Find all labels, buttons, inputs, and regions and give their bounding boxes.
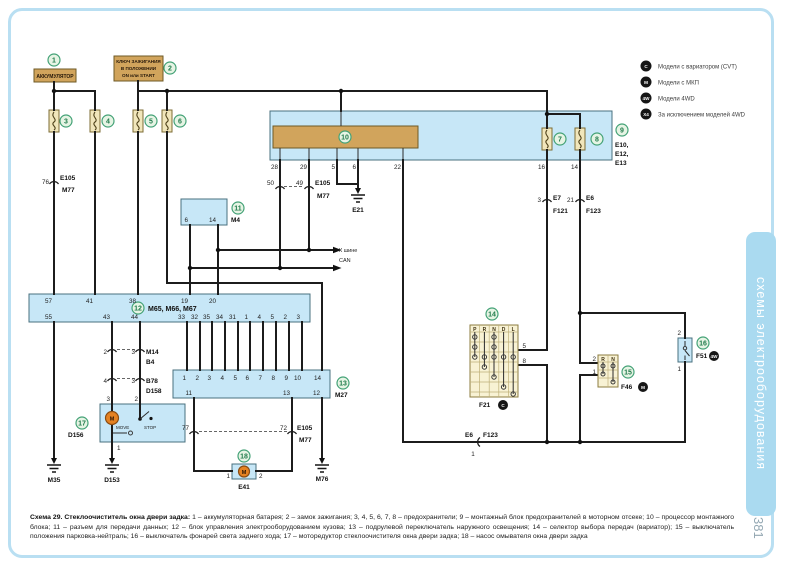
item-1: 1 bbox=[52, 57, 56, 64]
ignition-label-1: КЛЮЧ ЗАЖИГАНИЯ bbox=[116, 59, 160, 64]
item-8: 8 bbox=[595, 136, 599, 143]
connector-code: E7 bbox=[553, 195, 561, 202]
pin-label: 10 bbox=[294, 375, 302, 382]
connector-code: M77 bbox=[299, 437, 312, 444]
pin-label: 1 bbox=[677, 366, 681, 373]
item-5: 5 bbox=[149, 118, 153, 125]
pin-label: 50 bbox=[267, 180, 275, 187]
pin-label: 3 bbox=[131, 378, 135, 385]
item-12: 12 bbox=[134, 305, 142, 312]
pin-label: 8 bbox=[271, 375, 275, 382]
can-bus-label: CAN bbox=[339, 258, 351, 264]
pin-label: 6 bbox=[245, 375, 249, 382]
bcm-label: M65, M66, M67 bbox=[148, 306, 197, 313]
connector-code: B78 bbox=[146, 378, 158, 385]
motor-letter: M bbox=[242, 470, 247, 476]
pin-label: 1 bbox=[471, 451, 475, 458]
pin-label: 16 bbox=[538, 164, 546, 171]
battery-label: АККУМУЛЯТОР bbox=[36, 74, 74, 80]
x4wd-badge-label: X4 bbox=[643, 112, 649, 117]
connector-code: M77 bbox=[62, 187, 75, 194]
pin-label: 29 bbox=[300, 164, 308, 171]
connector-code: E41 bbox=[238, 484, 250, 491]
pin-label: 8 bbox=[522, 358, 526, 365]
caption-title: Схема 29. Стеклоочиститель окна двери за… bbox=[30, 514, 190, 521]
connector-code: E105 bbox=[60, 175, 76, 182]
pin-label: 22 bbox=[394, 164, 402, 171]
pin-label: 2 bbox=[283, 314, 287, 321]
connector-code: E6 bbox=[465, 432, 473, 439]
f46-col-n: N bbox=[611, 357, 615, 363]
pin-label: 13 bbox=[283, 390, 291, 397]
manual-page: 1 2 3 4 5 6 7 8 9 10 11 12 13 14 15 16 1… bbox=[0, 0, 800, 588]
pin-label: 19 bbox=[181, 298, 189, 305]
pin-label: 4 bbox=[220, 375, 224, 382]
selector-grid bbox=[470, 325, 518, 397]
connector-code: M4 bbox=[231, 217, 240, 224]
pin-label: 1 bbox=[117, 445, 121, 452]
pin-label: 35 bbox=[203, 314, 211, 321]
connector-code: F21 bbox=[479, 402, 491, 409]
pin-label: 33 bbox=[178, 314, 186, 321]
pin-label: 3 bbox=[537, 197, 541, 204]
pin-label: 3 bbox=[207, 375, 211, 382]
pin-label: 38 bbox=[129, 298, 137, 305]
ground-icon-e21 bbox=[351, 188, 365, 202]
ignition-label-3: ON или START bbox=[122, 73, 155, 78]
ground-icon-m76 bbox=[315, 458, 329, 472]
pin-label: 2 bbox=[134, 396, 138, 403]
pin-label: 57 bbox=[45, 298, 53, 305]
pin-label: 9 bbox=[284, 375, 288, 382]
pin-label: 7 bbox=[258, 375, 262, 382]
pin-label: 2 bbox=[103, 349, 107, 356]
section-tab: схемы электрооборудования bbox=[746, 232, 776, 516]
item-15: 15 bbox=[624, 369, 632, 376]
pin-label: 14 bbox=[209, 217, 217, 224]
pin-label: 41 bbox=[86, 298, 94, 305]
pin-label: 3 bbox=[106, 396, 110, 403]
connector-code: F121 bbox=[553, 208, 568, 215]
pin-label: 14 bbox=[571, 164, 579, 171]
selector-col-d: D bbox=[502, 327, 506, 333]
connector-code: M77 bbox=[317, 193, 330, 200]
item-14: 14 bbox=[488, 311, 496, 318]
item-9: 9 bbox=[620, 127, 624, 134]
pin-label: 1 bbox=[592, 369, 596, 376]
4wd-badge-label: 4W bbox=[711, 354, 719, 359]
move-label: MOVE bbox=[116, 425, 129, 430]
connector-code: E6 bbox=[586, 195, 594, 202]
mt-badge-label: M bbox=[644, 80, 648, 85]
pin-label: 4 bbox=[257, 314, 261, 321]
mt-badge-label: M bbox=[641, 385, 645, 390]
connector-code: F46 bbox=[621, 384, 633, 391]
pin-label: 20 bbox=[209, 298, 217, 305]
item-11: 11 bbox=[234, 205, 242, 212]
pin-label: 49 bbox=[296, 180, 304, 187]
connector-code: E105 bbox=[297, 425, 313, 432]
pin-label: 2 bbox=[592, 356, 596, 363]
pin-label: 4 bbox=[103, 378, 107, 385]
item-3: 3 bbox=[64, 118, 68, 125]
wiring-diagram: 1 2 3 4 5 6 7 8 9 10 11 12 13 14 15 16 1… bbox=[0, 0, 800, 588]
pin-label: 77 bbox=[182, 425, 190, 432]
connector-code: F123 bbox=[483, 432, 498, 439]
can-bus-label: К шине bbox=[339, 248, 357, 254]
pin-label: 76 bbox=[42, 179, 50, 186]
pin-label: 43 bbox=[103, 314, 111, 321]
ground-code: D153 bbox=[104, 477, 120, 484]
pin-label: 1 bbox=[244, 314, 248, 321]
pin-label: 34 bbox=[216, 314, 224, 321]
pin-label: 3 bbox=[296, 314, 300, 321]
legend-cvt-text: Модели с вариатором (CVT) bbox=[658, 65, 737, 71]
motor-letter: M bbox=[110, 417, 115, 423]
connector-code: B4 bbox=[146, 359, 155, 366]
connector-code: M14 bbox=[146, 349, 159, 356]
connector-code: F51 bbox=[696, 353, 708, 360]
ground-icon-m35 bbox=[47, 458, 61, 472]
pin-label: 12 bbox=[313, 390, 321, 397]
ground-code: M35 bbox=[48, 477, 61, 484]
connector-code: D156 bbox=[68, 432, 84, 439]
ground-code: M76 bbox=[316, 476, 329, 483]
ignition-label-2: В ПОЛОЖЕНИИ bbox=[121, 66, 156, 71]
item-10: 10 bbox=[341, 134, 349, 141]
section-tab-label: схемы электрооборудования bbox=[754, 277, 768, 470]
pin-label: 14 bbox=[314, 375, 322, 382]
pin-label: 28 bbox=[271, 164, 279, 171]
legend-x4wd-text: За исключением моделей 4WD bbox=[658, 112, 746, 119]
page-number: 381 bbox=[751, 517, 766, 539]
figure-caption: Схема 29. Стеклоочиститель окна двери за… bbox=[30, 513, 734, 542]
item-16: 16 bbox=[699, 340, 707, 347]
item-18: 18 bbox=[240, 453, 248, 460]
pin-label: 6 bbox=[184, 217, 188, 224]
item-4: 4 bbox=[106, 118, 110, 125]
f46-col-r: R bbox=[601, 357, 605, 363]
item-6: 6 bbox=[178, 118, 182, 125]
connector-code: M27 bbox=[335, 392, 348, 399]
selector-col-l: L bbox=[512, 327, 515, 333]
selector-col-n: N bbox=[492, 327, 496, 333]
ground-icon-d153 bbox=[105, 458, 119, 472]
pin-label: 11 bbox=[185, 390, 192, 397]
pin-label: 2 bbox=[677, 330, 681, 337]
pin-label: 44 bbox=[131, 314, 139, 321]
legend-mt-text: Модели с МКП bbox=[658, 81, 699, 87]
item-17: 17 bbox=[78, 420, 86, 427]
ground-code: E21 bbox=[352, 207, 364, 214]
pin-label: 2 bbox=[195, 375, 199, 382]
pin-label: 5 bbox=[331, 164, 335, 171]
stop-label: STOP bbox=[144, 425, 156, 430]
pin-label: 31 bbox=[229, 314, 237, 321]
connector-code: D158 bbox=[146, 388, 162, 395]
pin-label: 1 bbox=[182, 375, 186, 382]
fusebox-code: E12, bbox=[615, 151, 629, 158]
pin-label: 3 bbox=[131, 349, 135, 356]
4wd-badge-label: 4W bbox=[643, 96, 651, 101]
can-arrow-icon bbox=[333, 265, 342, 271]
pin-label: 21 bbox=[567, 197, 575, 204]
fusebox-code: E10, bbox=[615, 142, 629, 149]
pin-label: 32 bbox=[191, 314, 199, 321]
connector-code: F123 bbox=[586, 208, 601, 215]
legend: C Модели с вариатором (CVT) M Модели с М… bbox=[641, 61, 746, 120]
pin-label: 5 bbox=[270, 314, 274, 321]
pin-label: 55 bbox=[45, 314, 53, 321]
legend-4wd-text: Модели 4WD bbox=[658, 97, 695, 103]
connector-code: E105 bbox=[315, 180, 331, 187]
pin-label: 6 bbox=[352, 164, 356, 171]
item-13: 13 bbox=[339, 380, 347, 387]
item-7: 7 bbox=[558, 136, 562, 143]
pin-label: 5 bbox=[522, 343, 526, 350]
pin-label: 2 bbox=[259, 473, 263, 480]
selector-col-r: R bbox=[483, 327, 487, 333]
pin-label: 5 bbox=[233, 375, 237, 382]
pin-label: 1 bbox=[226, 473, 230, 480]
pin-label: 72 bbox=[280, 425, 288, 432]
fusebox-code: E13 bbox=[615, 160, 627, 167]
item-2: 2 bbox=[168, 65, 172, 72]
